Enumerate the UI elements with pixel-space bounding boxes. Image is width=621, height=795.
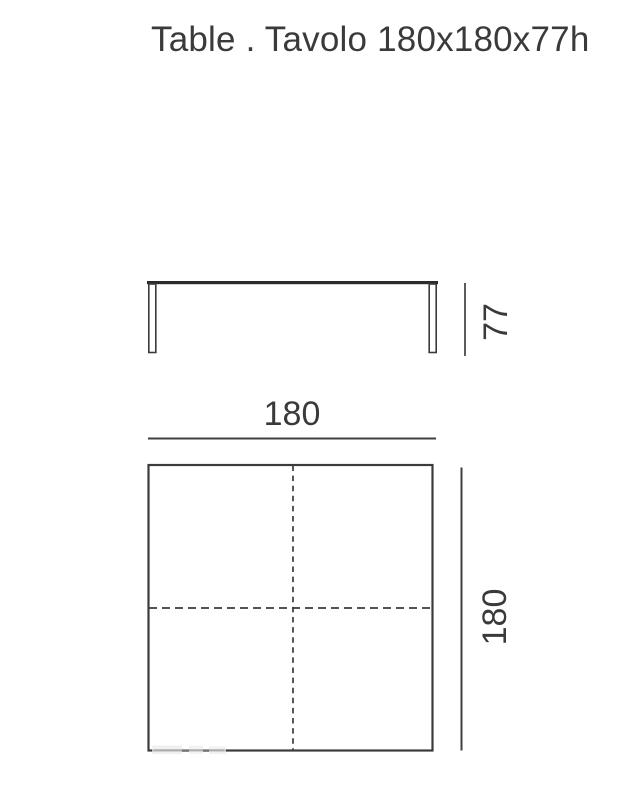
tabletop-line bbox=[147, 281, 438, 284]
top-plan-view bbox=[148, 439, 462, 755]
width-dimension-label: 180 bbox=[264, 397, 321, 431]
height-dimension-label: 77 bbox=[479, 303, 513, 341]
table-leg-right bbox=[429, 284, 436, 353]
spec-sheet-page: Table . Tavolo 180x180x77h bbox=[0, 0, 621, 795]
watermark-remnant bbox=[152, 746, 226, 755]
depth-dimension-label: 180 bbox=[478, 589, 512, 646]
front-elevation-view bbox=[147, 281, 465, 356]
table-leg-left bbox=[149, 284, 156, 353]
